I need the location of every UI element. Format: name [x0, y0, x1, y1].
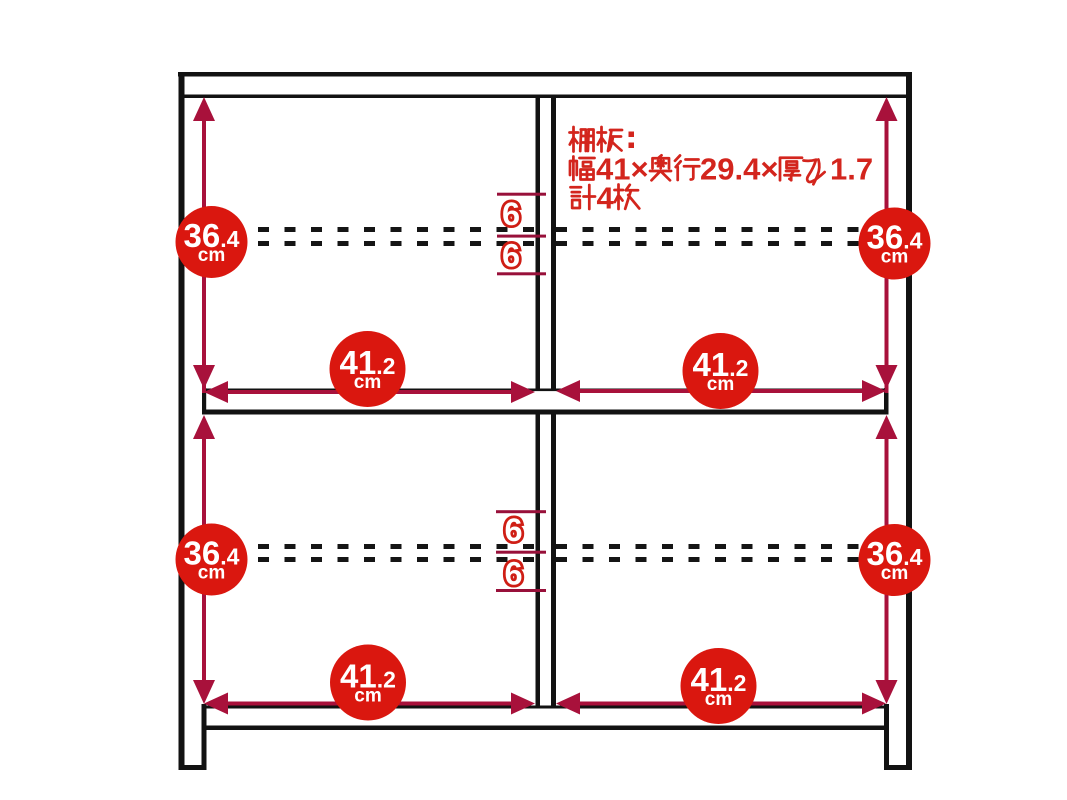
svg-text:6: 6 — [502, 238, 520, 274]
svg-text:cm: cm — [881, 563, 908, 584]
svg-text:29.4×: 29.4× — [700, 152, 778, 187]
svg-text:1.7: 1.7 — [830, 152, 873, 187]
svg-text:6: 6 — [502, 196, 520, 232]
svg-text:cm: cm — [881, 247, 908, 268]
svg-text:4: 4 — [597, 181, 615, 216]
svg-text:cm: cm — [198, 245, 225, 266]
svg-text:6: 6 — [504, 556, 522, 592]
svg-text:6: 6 — [504, 512, 522, 548]
svg-text:cm: cm — [354, 372, 381, 393]
svg-text:cm: cm — [198, 563, 225, 584]
svg-text:cm: cm — [354, 686, 381, 707]
svg-text:cm: cm — [705, 689, 732, 710]
svg-text:cm: cm — [707, 374, 734, 395]
